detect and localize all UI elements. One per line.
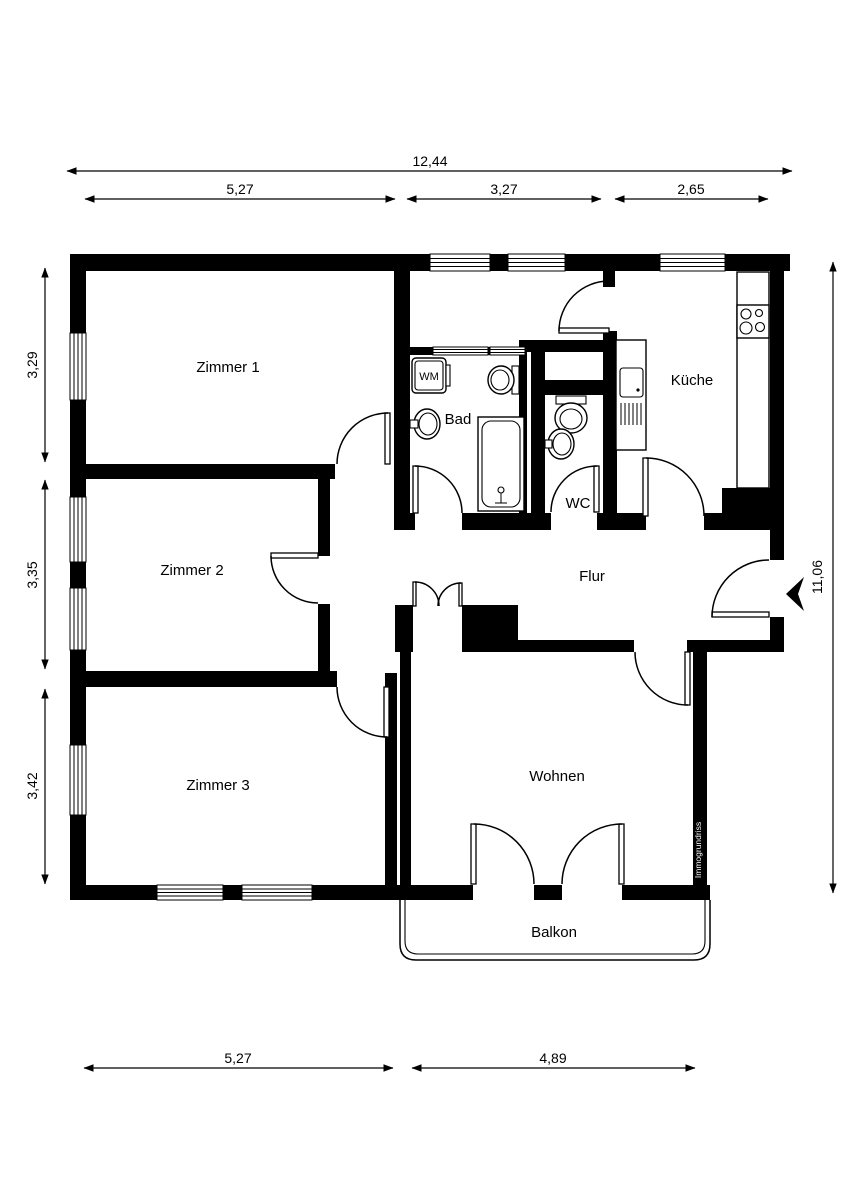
wall-zimmer2-right-lower: [318, 604, 330, 673]
toilet-wc: [555, 396, 587, 433]
door-entrance: [712, 560, 769, 617]
window-bad-interior-1: [433, 347, 488, 355]
wall-wohnen-top-mid: [518, 640, 634, 652]
stove: [737, 305, 769, 338]
door-kueche-vestibule: [559, 281, 609, 333]
wall-zimmer1-zimmer2: [70, 464, 335, 479]
dim-label-right: 11,06: [809, 560, 825, 594]
window-bad-interior-2: [490, 347, 525, 355]
washing-machine-label: WM: [419, 371, 439, 383]
window-zimmer3-south-1: [157, 885, 223, 900]
window-zimmer3-west: [70, 745, 86, 815]
wall-wc-niche: [531, 380, 607, 395]
door-kueche-flur: [643, 458, 704, 516]
window-kueche-north: [660, 254, 725, 271]
door-double-swing-wohnen: [413, 582, 462, 606]
door-bad: [413, 466, 462, 513]
wall-wohnen-left: [400, 652, 411, 885]
dim-label-top-total: 12,44: [412, 153, 447, 169]
window-zimmer2-west-1: [70, 497, 86, 562]
kitchen-sink-counter: [616, 340, 646, 450]
wall-kueche-door-stub: [603, 270, 615, 287]
wall-kueche-shaft: [722, 488, 770, 530]
wall-chimney-block: [462, 605, 518, 652]
entrance-arrow-icon: [786, 577, 804, 611]
wall-doubledoor-left-block: [395, 605, 413, 652]
room-label-zimmer3: Zimmer 3: [186, 777, 249, 794]
wall-flur-north-4: [704, 513, 722, 530]
wall-outer-right-upper: [770, 254, 784, 560]
wall-outer-bottom-right: [622, 885, 710, 900]
sink-wc: [545, 429, 574, 459]
room-label-flur: Flur: [579, 568, 605, 585]
room-label-wc: WC: [566, 495, 591, 512]
watermark-label: Immogrundriss: [693, 822, 703, 878]
room-label-bad: Bad: [445, 411, 472, 428]
room-label-balkon: Balkon: [531, 924, 577, 941]
dim-label-bottom-1: 5,27: [224, 1050, 251, 1066]
wall-balcony-pier: [534, 885, 562, 900]
room-label-zimmer1: Zimmer 1: [196, 359, 259, 376]
dim-label-bottom-2: 4,89: [539, 1050, 566, 1066]
dim-label-left-3: 3,42: [24, 772, 40, 799]
dim-label-top-2: 3,27: [490, 181, 517, 197]
wall-jog-horizontal: [687, 640, 783, 652]
bathtub: [478, 417, 524, 511]
door-zimmer1: [337, 413, 390, 464]
wall-zimmer1-right: [394, 271, 410, 530]
door-zimmer2: [271, 553, 318, 603]
dim-label-left-2: 3,35: [24, 561, 40, 588]
wall-zimmer2-zimmer3: [70, 671, 337, 687]
door-balcony-right: [562, 824, 624, 884]
wall-flur-north-1: [394, 513, 415, 530]
wall-kueche-left: [603, 331, 617, 513]
sink-bad: [410, 409, 440, 439]
wall-zimmer2-right-upper: [318, 479, 330, 556]
door-balcony-left: [471, 824, 534, 884]
dim-label-left-1: 3,29: [24, 351, 40, 378]
wall-wc-left: [531, 340, 545, 513]
window-vestibule-north-1: [430, 254, 490, 271]
wall-flur-north-3: [597, 513, 646, 530]
window-zimmer2-west-2: [70, 588, 86, 650]
floorplan-page: 12,44 5,27 3,27 2,65 3,29 3,35 3,42 11,0…: [0, 0, 848, 1200]
floorplan-drawing: 12,44 5,27 3,27 2,65 3,29 3,35 3,42 11,0…: [0, 0, 848, 1200]
dim-label-top-3: 2,65: [677, 181, 704, 197]
window-zimmer1-west: [70, 333, 86, 400]
toilet-bad: [488, 366, 519, 394]
window-vestibule-north-2: [508, 254, 565, 271]
dim-label-top-1: 5,27: [226, 181, 253, 197]
room-label-kueche: Küche: [671, 372, 714, 389]
room-label-zimmer2: Zimmer 2: [160, 562, 223, 579]
room-label-wohnen: Wohnen: [529, 768, 585, 785]
door-zimmer3: [337, 687, 389, 737]
door-wohnen: [635, 652, 690, 705]
window-zimmer3-south-2: [242, 885, 312, 900]
wall-flur-north-2: [462, 513, 551, 530]
